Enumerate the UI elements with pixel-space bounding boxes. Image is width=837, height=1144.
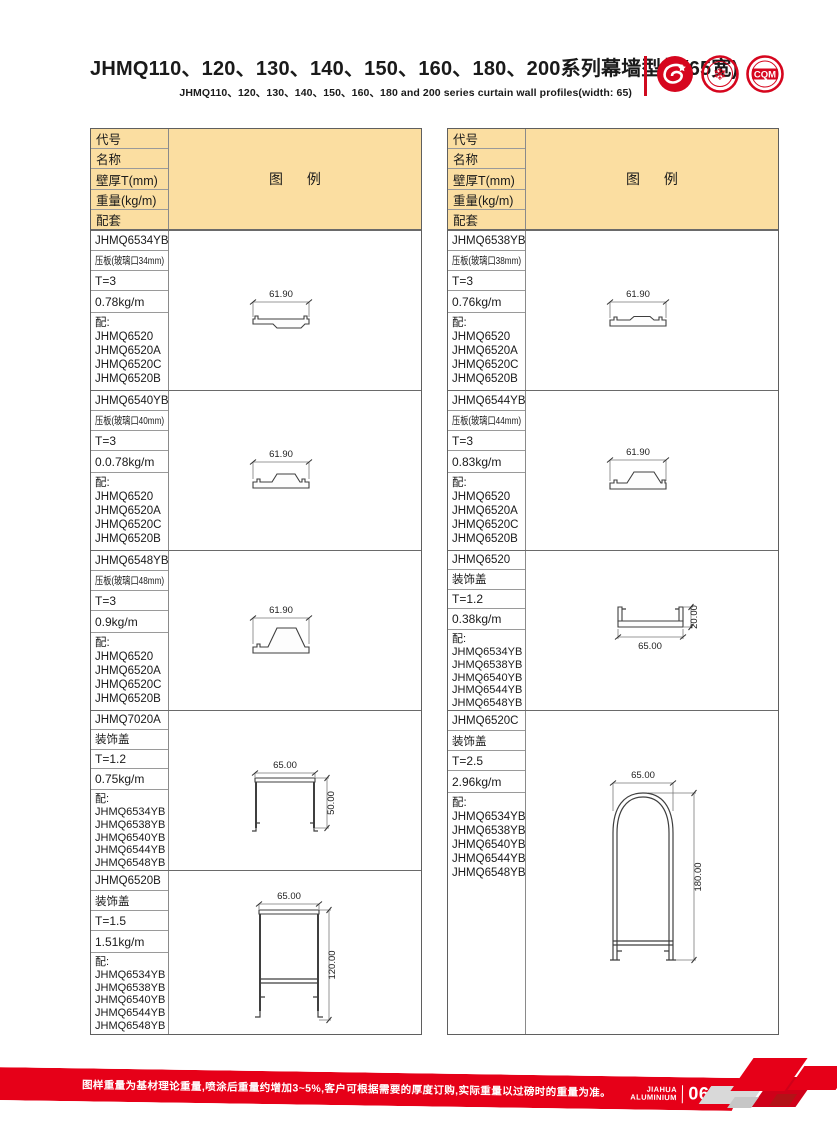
cqm-text: CQM	[754, 70, 776, 81]
footer-band: 图样重量为基材理论重量,喷涂后重量约增加3~5%,客户可根据需要的厚度订购,实际…	[0, 1067, 746, 1111]
head-row-name: 名称	[91, 149, 168, 169]
table-row: JHMQ6540YB 压板(玻璃口40mm) T=3 0.0.78kg/m 配:…	[91, 390, 421, 550]
profile-weight: 0.38kg/m	[448, 609, 525, 630]
profile-thickness: T=3	[448, 271, 525, 291]
profile-name: 装饰盖	[91, 730, 168, 749]
profile-accessories: 配: JHMQ6534YB JHMQ6538YB JHMQ6540YB JHMQ…	[448, 793, 525, 1034]
head-row-accessories: 配套	[91, 210, 168, 229]
profile-weight: 1.51kg/m	[91, 931, 168, 953]
profile-diagram: 65.00 50.00	[169, 711, 421, 870]
profile-diagram: 61.90	[169, 551, 421, 710]
dim-width-label: 65.00	[631, 770, 655, 781]
page-header: JHMQ110、120、130、140、150、160、180、200系列幕墙型…	[90, 52, 632, 100]
profile-table-left: 代号 名称 壁厚T(mm) 重量(kg/m) 配套 图 例 JHMQ6534YB…	[90, 128, 422, 1035]
profile-accessories: 配: JHMQ6534YB JHMQ6538YB JHMQ6540YB JHMQ…	[91, 790, 168, 870]
brand-name-line2: ALUMINIUM	[630, 1093, 677, 1102]
head-label-column: 代号 名称 壁厚T(mm) 重量(kg/m) 配套	[448, 129, 526, 229]
head-row-code: 代号	[448, 129, 525, 149]
table-row: JHMQ6538YB 压板(玻璃口38mm) T=3 0.76kg/m 配: J…	[448, 230, 778, 390]
profile-weight: 0.83kg/m	[448, 451, 525, 473]
profile-code: JHMQ7020A	[91, 711, 168, 730]
head-row-name: 名称	[448, 149, 525, 169]
head-row-weight: 重量(kg/m)	[91, 190, 168, 210]
profile-diagram: 65.00 120.00	[169, 871, 421, 1034]
dim-width-label: 65.00	[273, 760, 297, 771]
dim-height-label: 120.00	[327, 950, 338, 979]
table-head: 代号 名称 壁厚T(mm) 重量(kg/m) 配套 图 例	[91, 129, 421, 230]
dim-width-label: 61.90	[269, 605, 293, 616]
profile-thickness: T=3	[448, 431, 525, 451]
profile-weight: 0.9kg/m	[91, 611, 168, 633]
profile-code: JHMQ6540YB	[91, 391, 168, 411]
brand-divider	[682, 1085, 684, 1103]
profile-name: 压板(玻璃口44mm)	[448, 411, 525, 431]
profile-accessories: 配: JHMQ6520 JHMQ6520A JHMQ6520C JHMQ6520…	[91, 313, 168, 390]
table-row: JHMQ7020A 装饰盖 T=1.2 0.75kg/m 配: JHMQ6534…	[91, 710, 421, 870]
profile-diagram: 65.00 180.00	[526, 711, 778, 1034]
profile-thickness: T=1.2	[448, 590, 525, 609]
profile-thickness: T=1.5	[91, 911, 168, 931]
dim-height-label: 20.00	[689, 605, 700, 629]
profile-weight: 0.78kg/m	[91, 291, 168, 313]
table-row: JHMQ6520B 装饰盖 T=1.5 1.51kg/m 配: JHMQ6534…	[91, 870, 421, 1034]
cqm-cert-icon: CQM	[746, 55, 784, 93]
page-subtitle: JHMQ110、120、130、140、150、160、180 and 200 …	[90, 85, 632, 100]
table-head: 代号 名称 壁厚T(mm) 重量(kg/m) 配套 图 例	[448, 129, 778, 230]
table-row: JHMQ6520 装饰盖 T=1.2 0.38kg/m 配: JHMQ6534Y…	[448, 550, 778, 710]
profile-accessories: 配: JHMQ6520 JHMQ6520A JHMQ6520C JHMQ6520…	[448, 473, 525, 550]
dim-height-label: 50.00	[326, 791, 337, 815]
head-row-thickness: 壁厚T(mm)	[91, 169, 168, 189]
profile-code: JHMQ6534YB	[91, 231, 168, 251]
profile-diagram: 61.90	[169, 391, 421, 550]
profile-thickness: T=3	[91, 431, 168, 451]
head-diagram-label: 图 例	[169, 129, 421, 229]
profile-accessories: 配: JHMQ6520 JHMQ6520A JHMQ6520C JHMQ6520…	[91, 633, 168, 710]
profile-thickness: T=2.5	[448, 751, 525, 771]
profile-code: JHMQ6548YB	[91, 551, 168, 571]
dim-height-label: 180.00	[693, 862, 704, 891]
dim-width-label: 65.00	[638, 641, 662, 652]
profile-accessories: 配: JHMQ6520 JHMQ6520A JHMQ6520C JHMQ6520…	[91, 473, 168, 550]
profile-accessories: 配: JHMQ6534YB JHMQ6538YB JHMQ6540YB JHMQ…	[448, 630, 525, 710]
dim-width-label: 61.90	[269, 289, 293, 300]
profile-accessories: 配: JHMQ6520 JHMQ6520A JHMQ6520C JHMQ6520…	[448, 313, 525, 390]
head-label-column: 代号 名称 壁厚T(mm) 重量(kg/m) 配套	[91, 129, 169, 229]
head-row-code: 代号	[91, 129, 168, 149]
footer-note: 图样重量为基材理论重量,喷涂后重量约增加3~5%,客户可根据需要的厚度订购,实际…	[82, 1077, 611, 1100]
profile-code: JHMQ6520C	[448, 711, 525, 731]
profile-name: 压板(玻璃口48mm)	[91, 571, 168, 591]
profile-thickness: T=3	[91, 271, 168, 291]
profile-code: JHMQ6520B	[91, 871, 168, 891]
dim-width-label: 65.00	[277, 891, 301, 902]
table-row: JHMQ6520C 装饰盖 T=2.5 2.96kg/m 配: JHMQ6534…	[448, 710, 778, 1034]
profile-weight: 0.0.78kg/m	[91, 451, 168, 473]
page-title: JHMQ110、120、130、140、150、160、180、200系列幕墙型…	[90, 52, 632, 81]
dim-width-label: 61.90	[626, 447, 650, 458]
profile-thickness: T=1.2	[91, 750, 168, 769]
profile-name: 装饰盖	[91, 891, 168, 911]
head-row-thickness: 壁厚T(mm)	[448, 169, 525, 189]
profile-accessories: 配: JHMQ6534YB JHMQ6538YB JHMQ6540YB JHMQ…	[91, 953, 168, 1034]
svg-text:❄: ❄	[713, 65, 727, 85]
profile-name: 压板(玻璃口34mm)	[91, 251, 168, 271]
head-diagram-label: 图 例	[526, 129, 778, 229]
profile-code: JHMQ6520	[448, 551, 525, 570]
table-row: JHMQ6534YB 压板(玻璃口34mm) T=3 0.78kg/m 配: J…	[91, 230, 421, 390]
table-row: JHMQ6544YB 压板(玻璃口44mm) T=3 0.83kg/m 配: J…	[448, 390, 778, 550]
profile-weight: 2.96kg/m	[448, 771, 525, 793]
profile-diagram: 61.90	[169, 231, 421, 390]
profile-name: 压板(玻璃口40mm)	[91, 411, 168, 431]
profile-name: 装饰盖	[448, 731, 525, 751]
profile-name: 装饰盖	[448, 570, 525, 589]
profile-diagram: 61.90	[526, 391, 778, 550]
header-divider	[644, 56, 647, 96]
head-row-accessories: 配套	[448, 210, 525, 229]
dim-width-label: 61.90	[269, 449, 293, 460]
inspection-seal-icon: ❄	[701, 55, 739, 93]
profile-code: JHMQ6544YB	[448, 391, 525, 411]
dim-width-label: 61.90	[626, 289, 650, 300]
table-row: JHMQ6548YB 压板(玻璃口48mm) T=3 0.9kg/m 配: JH…	[91, 550, 421, 710]
profile-table-right: 代号 名称 壁厚T(mm) 重量(kg/m) 配套 图 例 JHMQ6538YB…	[447, 128, 779, 1035]
head-row-weight: 重量(kg/m)	[448, 190, 525, 210]
gb-badge-icon	[656, 55, 694, 93]
certification-logos: ❄ CQM	[656, 55, 784, 93]
profile-weight: 0.76kg/m	[448, 291, 525, 313]
catalog-page: { "header": { "title": "JHMQ110、120、130、…	[0, 0, 837, 1144]
profile-diagram: 20.00 65.00	[526, 551, 778, 710]
profile-weight: 0.75kg/m	[91, 769, 168, 790]
profile-diagram: 61.90	[526, 231, 778, 390]
profile-name: 压板(玻璃口38mm)	[448, 251, 525, 271]
profile-thickness: T=3	[91, 591, 168, 611]
profile-code: JHMQ6538YB	[448, 231, 525, 251]
